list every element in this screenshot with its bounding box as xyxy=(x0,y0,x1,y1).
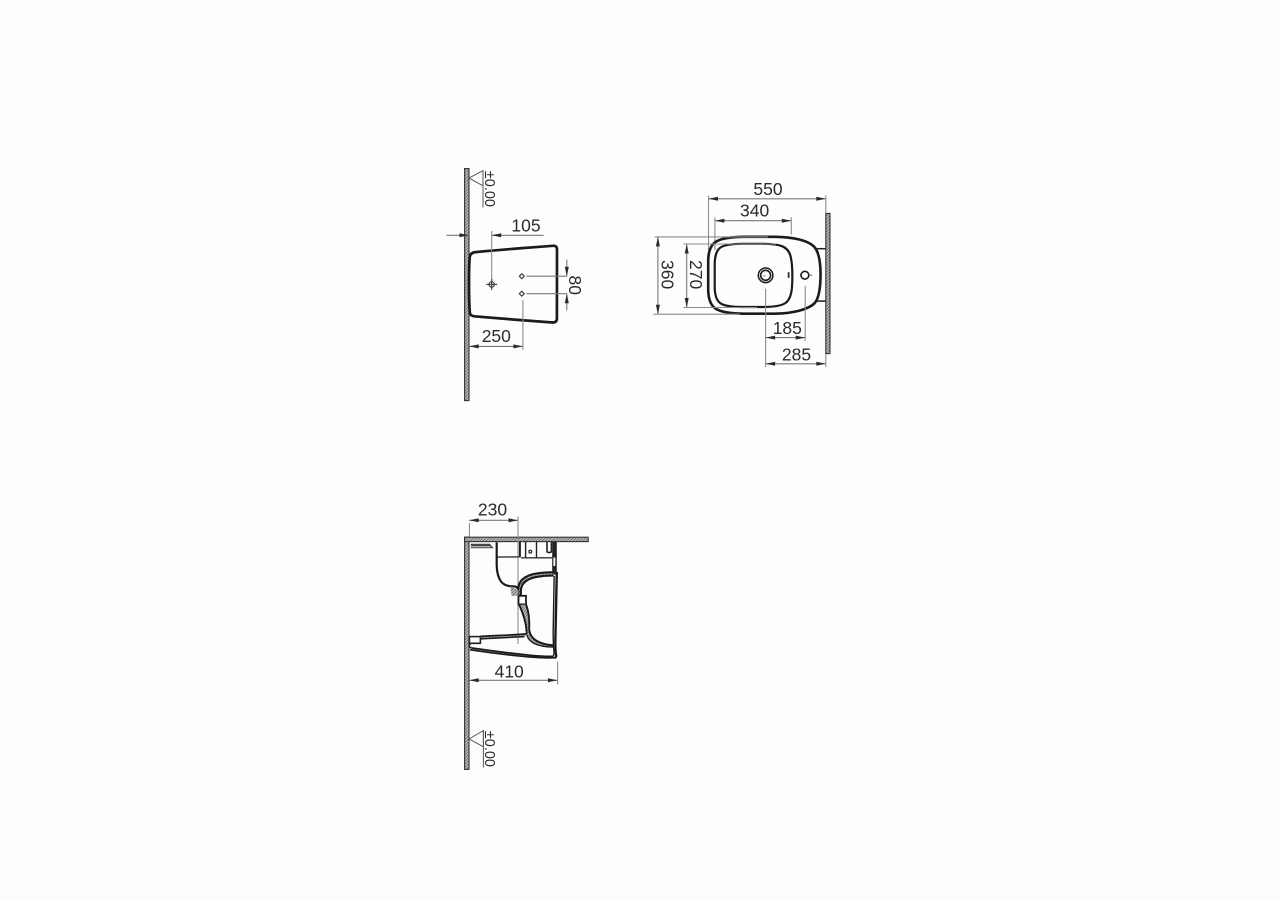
svg-text:±0.00: ±0.00 xyxy=(481,731,497,767)
svg-text:185: 185 xyxy=(773,318,802,338)
svg-text:360: 360 xyxy=(657,260,677,289)
svg-text:410: 410 xyxy=(495,661,524,681)
svg-text:270: 270 xyxy=(686,260,706,289)
svg-text:340: 340 xyxy=(740,201,769,221)
svg-text:550: 550 xyxy=(753,179,782,199)
svg-text:±0.00: ±0.00 xyxy=(481,171,497,207)
svg-text:105: 105 xyxy=(511,216,540,236)
svg-text:80: 80 xyxy=(565,275,585,295)
svg-text:230: 230 xyxy=(478,500,507,520)
svg-text:250: 250 xyxy=(482,326,511,346)
svg-text:285: 285 xyxy=(782,345,811,365)
